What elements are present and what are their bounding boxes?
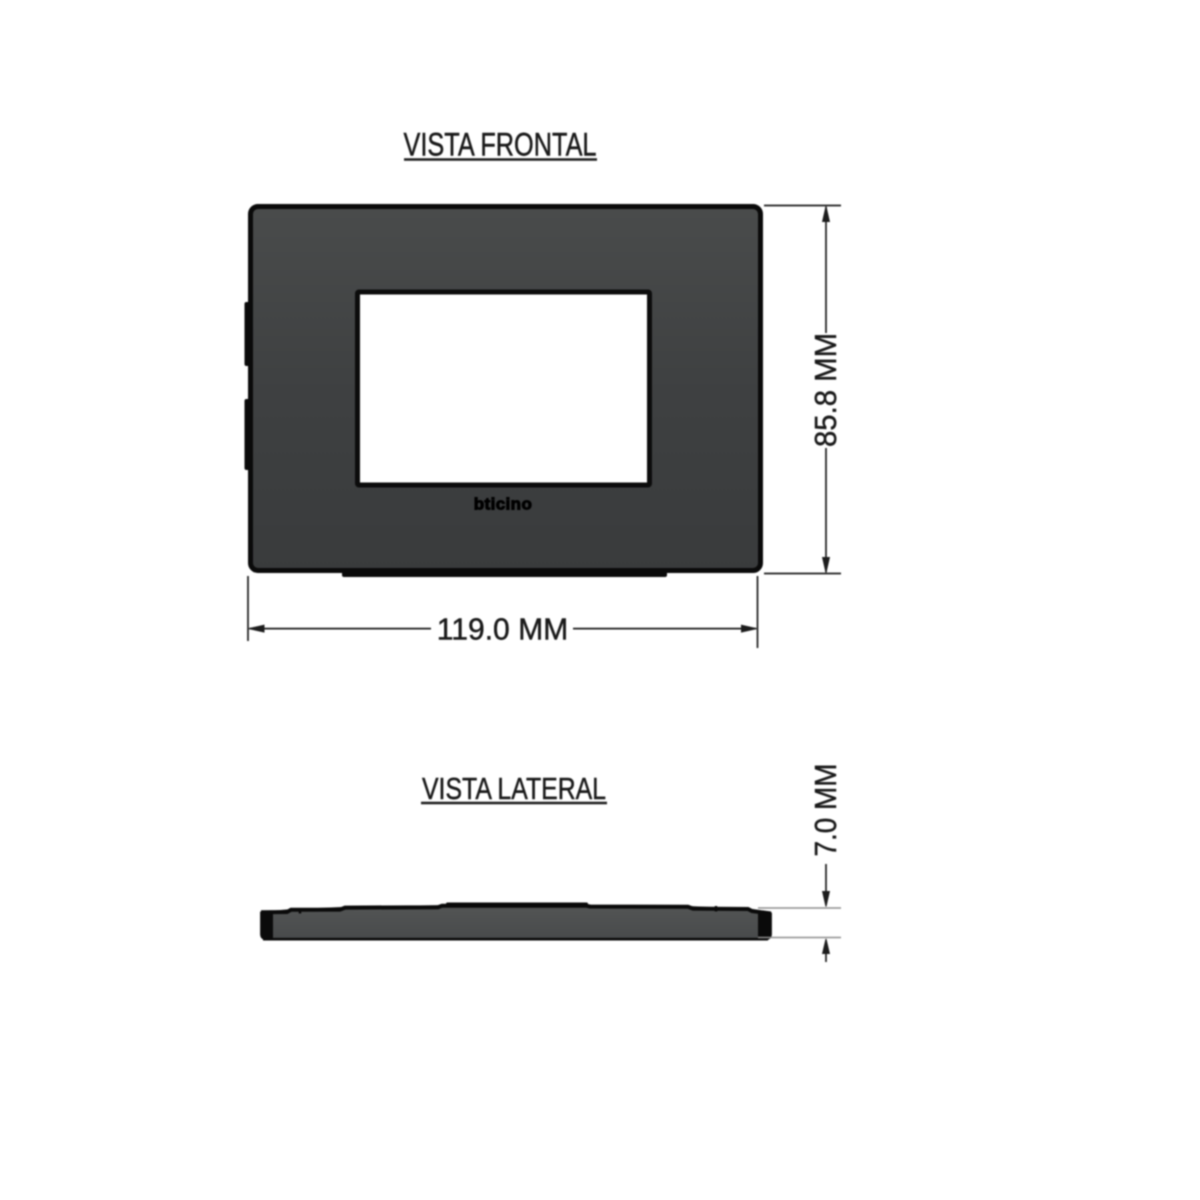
svg-text:bticino: bticino (474, 495, 533, 514)
